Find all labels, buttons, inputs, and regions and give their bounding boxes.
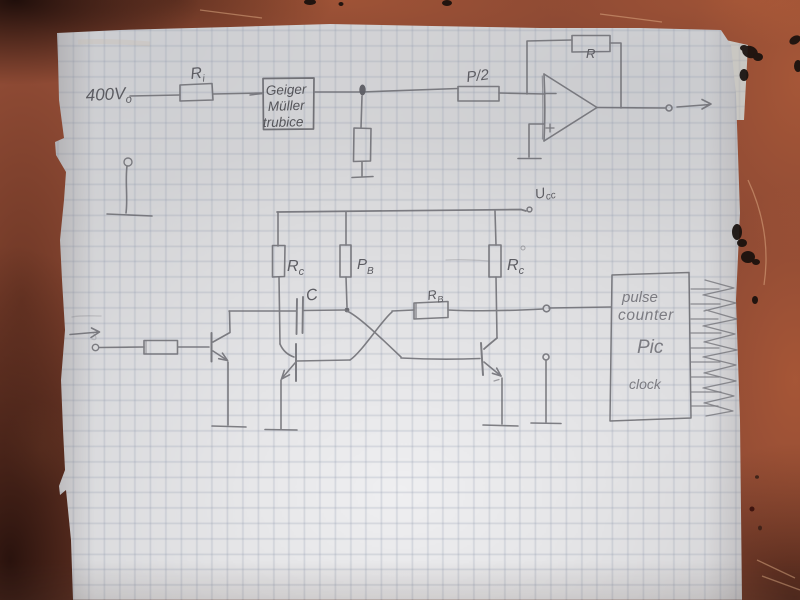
svg-text:trubice: trubice (263, 114, 304, 130)
svg-text:Pic: Pic (637, 337, 664, 358)
svg-text:counter: counter (618, 307, 674, 324)
svg-text:R: R (586, 46, 595, 61)
svg-text:Müller: Müller (268, 98, 306, 114)
svg-text:PB: PB (357, 256, 374, 277)
svg-text:clock: clock (629, 376, 662, 392)
svg-text:Rc: Rc (287, 258, 305, 278)
svg-text:P/2: P/2 (465, 66, 490, 86)
svg-text:400Vo: 400Vo (85, 84, 132, 108)
svg-text:Rc: Rc (507, 257, 525, 277)
svg-text:Ri: Ri (190, 65, 207, 86)
svg-text:C: C (305, 286, 320, 305)
svg-text:Geiger: Geiger (266, 82, 308, 98)
svg-text:Ucc: Ucc (533, 182, 557, 205)
svg-text:pulse: pulse (621, 289, 658, 306)
